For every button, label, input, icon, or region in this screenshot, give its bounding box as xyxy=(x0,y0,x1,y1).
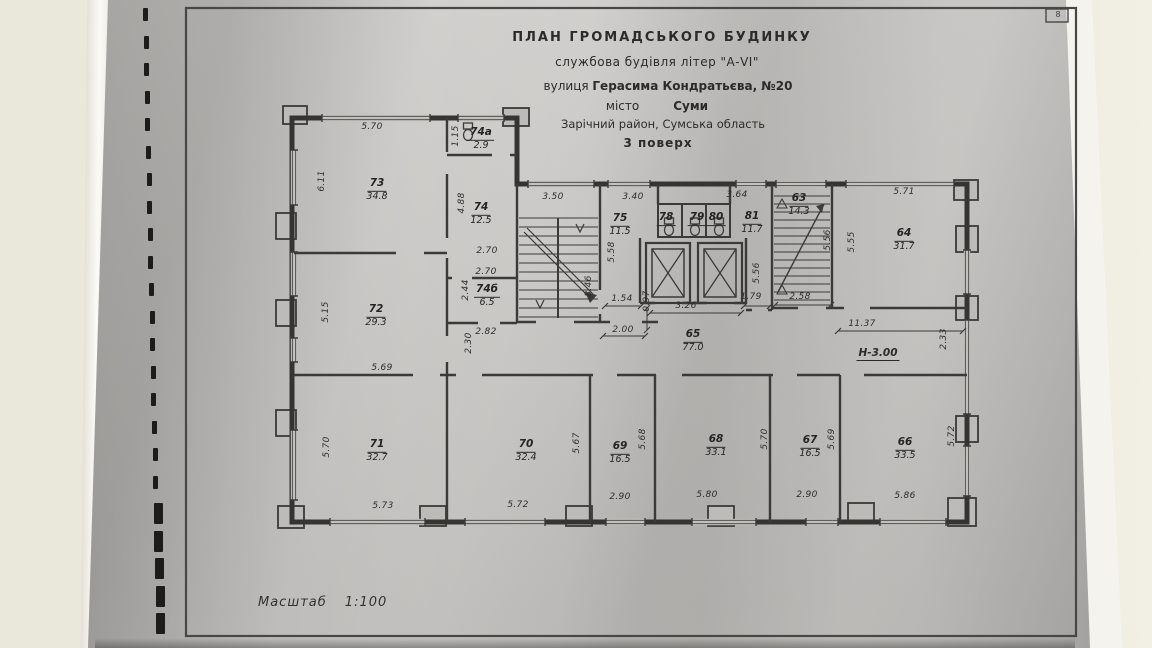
dimension-label: 2.00 xyxy=(612,325,633,335)
dimension-label: 0.97 xyxy=(642,290,652,311)
dimension-label: 5.67 xyxy=(572,432,582,453)
dimension-label: 5.72 xyxy=(507,500,528,510)
dimension-label: 5.56 xyxy=(823,229,833,250)
dimension-label: 1.54 xyxy=(611,294,632,304)
photographed-floor-plan-sheet: ПЛАН ГРОМАДСЬКОГО БУДИНКУ службова будів… xyxy=(0,0,1152,648)
dimension-label: 5.15 xyxy=(321,301,331,322)
dimension-label: 8.46 xyxy=(584,275,594,296)
dimension-label: 5.70 xyxy=(760,428,770,449)
dimension-label: 5.72 xyxy=(947,425,957,446)
dimension-label: 1.79 xyxy=(740,292,761,302)
dimension-label: 2.58 xyxy=(789,292,810,302)
room-label-67: 6716.5 xyxy=(799,429,820,459)
room-label-74: 7412.5 xyxy=(470,196,491,226)
dimension-label: 5.69 xyxy=(827,428,837,449)
room-label-75: 7511.5 xyxy=(609,207,630,237)
dimension-label: 5.68 xyxy=(638,428,648,449)
room-label-72: 7229.3 xyxy=(365,298,386,328)
dimension-label: 5.73 xyxy=(372,501,393,511)
dimension-label: 5.71 xyxy=(893,187,914,197)
dimension-label: 5.56 xyxy=(752,262,762,283)
room-label-68: 6833.1 xyxy=(705,428,726,458)
dimension-label: 2.82 xyxy=(475,327,496,337)
dimension-label: 5.86 xyxy=(894,491,915,501)
dimension-label: 1.15 xyxy=(451,125,461,146)
dimension-label: 11.37 xyxy=(848,319,875,329)
dimension-label: 4.88 xyxy=(457,192,467,213)
room-label-66: 6633.5 xyxy=(894,431,915,461)
dimension-label: 2.90 xyxy=(796,490,817,500)
scale-label: Масштаб xyxy=(258,595,327,610)
room-label-63: 6314.3 xyxy=(788,187,809,217)
dimension-label: 6.11 xyxy=(317,170,327,191)
dimension-label: 2.90 xyxy=(609,492,630,502)
room-label-78: 78 xyxy=(657,206,676,226)
room-label-69: 6916.5 xyxy=(609,435,630,465)
room-label-81: 8111.7 xyxy=(741,205,762,235)
room-label-74а: 74а2.9 xyxy=(468,121,494,151)
room-label-70: 7032.4 xyxy=(515,433,536,463)
dimension-label: 5.80 xyxy=(696,490,717,500)
room-label-71: 7132.7 xyxy=(366,433,387,463)
dimension-label: 5.70 xyxy=(322,436,332,457)
dimension-label: 2.33 xyxy=(939,328,949,349)
room-label-64: 6431.7 xyxy=(893,222,914,252)
dimension-label: 2.30 xyxy=(464,332,474,353)
sheet-corner-mark: 8 xyxy=(1051,10,1065,19)
room-label-80: 80 xyxy=(707,206,726,226)
dimension-label: 5.70 xyxy=(361,122,382,132)
dimension-label: 3.64 xyxy=(726,190,747,200)
scale-note: Масштаб1:100 xyxy=(258,595,387,610)
room-label-73: 7334.8 xyxy=(366,172,387,202)
dimension-label: 3.50 xyxy=(542,192,563,202)
dimension-label: 5.58 xyxy=(607,241,617,262)
scale-value: 1:100 xyxy=(345,595,387,610)
dimension-label: 3.40 xyxy=(622,192,643,202)
room-label-65: 6577.0 xyxy=(682,323,703,353)
room-label-74б: 74б6.5 xyxy=(474,278,500,308)
dimension-label: 2.44 xyxy=(461,279,471,300)
dimension-label: 2.70 xyxy=(476,246,497,256)
ceiling-height-note: Н-3.00 xyxy=(856,347,899,361)
plan-text-labels: 7334.874а2.97412.57229.374б6.57511.57879… xyxy=(0,0,1152,648)
room-label-79: 79 xyxy=(688,206,707,226)
dimension-label: 5.69 xyxy=(371,363,392,373)
dimension-label: 3.26 xyxy=(675,301,696,311)
dimension-label: 2.70 xyxy=(475,267,496,277)
dimension-label: 5.55 xyxy=(847,231,857,252)
